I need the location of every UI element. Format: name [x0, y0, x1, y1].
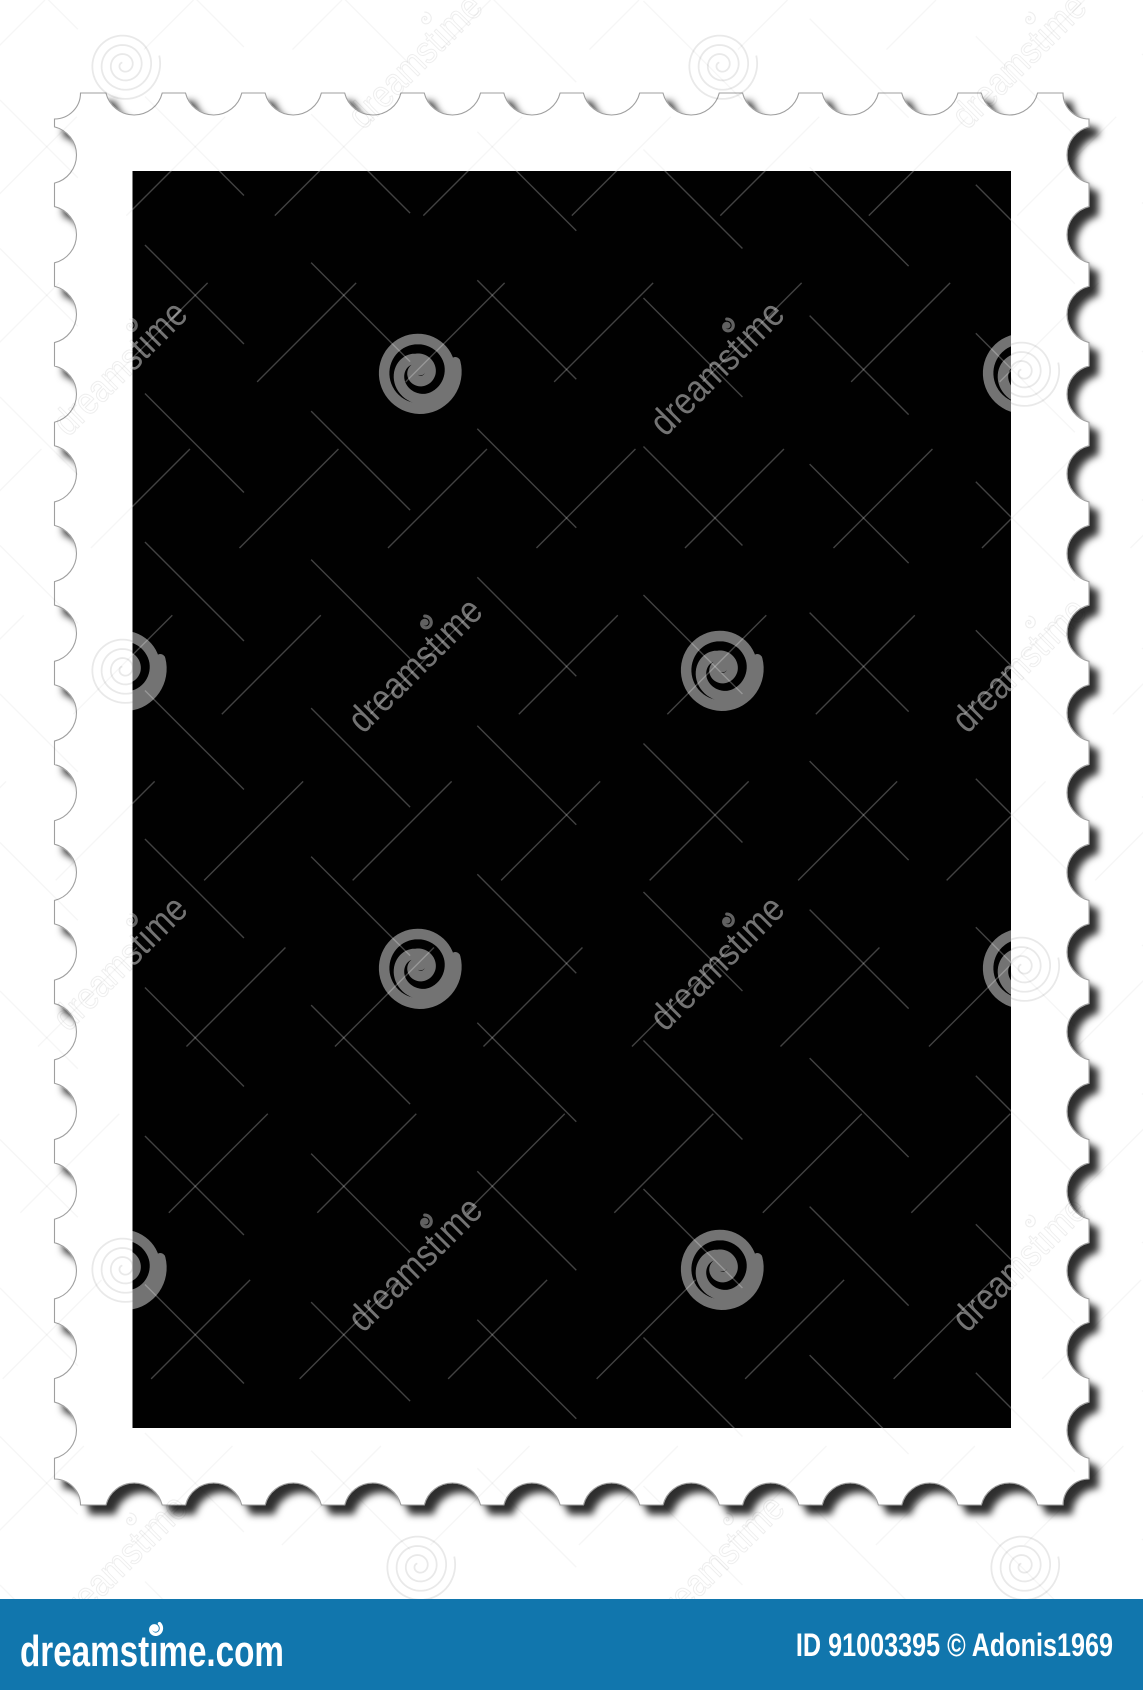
svg-text:ID 91003395 © Adonis1969: ID 91003395 © Adonis1969 — [796, 1628, 1113, 1664]
